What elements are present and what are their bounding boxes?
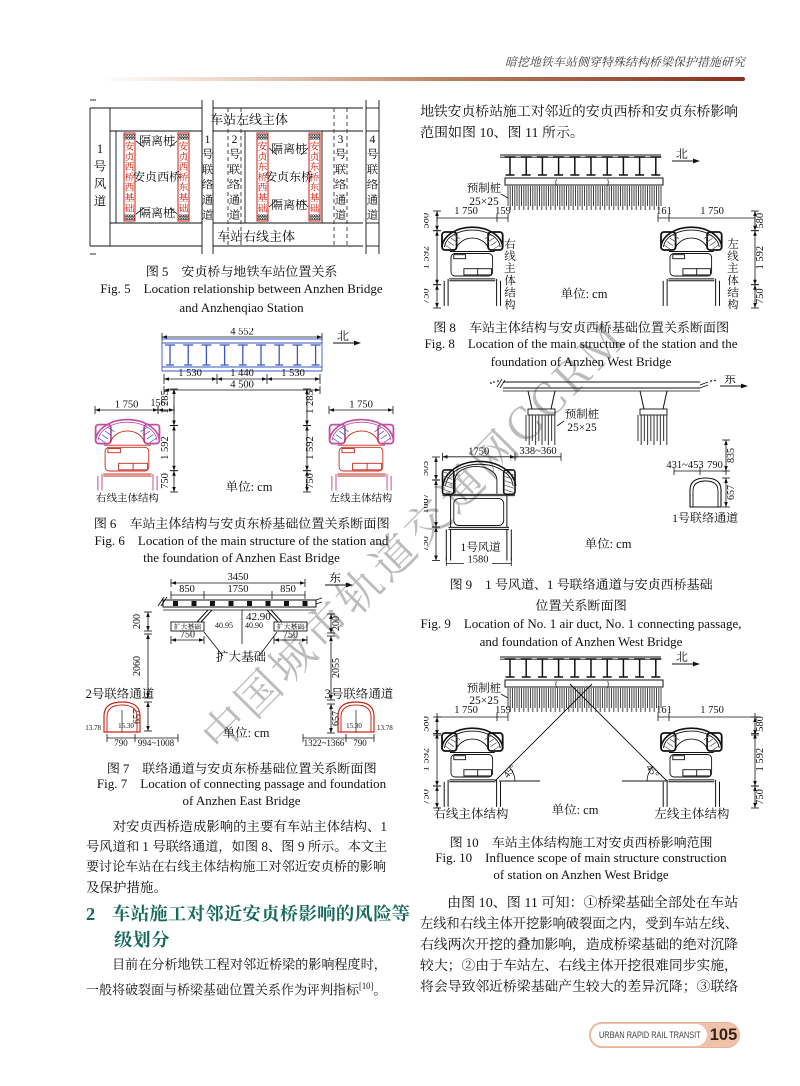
svg-text:1 592: 1 592 (755, 246, 766, 270)
svg-text:40.95: 40.95 (215, 621, 233, 630)
svg-text:号: 号 (202, 148, 214, 161)
svg-text:750: 750 (283, 630, 298, 641)
svg-text:左: 左 (727, 237, 739, 251)
svg-text:750: 750 (160, 473, 171, 489)
svg-text:750: 750 (305, 473, 316, 489)
svg-text:安贞东桥: 安贞东桥 (265, 170, 313, 184)
svg-text:750: 750 (424, 789, 432, 805)
svg-text:车站左线主体: 车站左线主体 (210, 112, 288, 127)
svg-text:2号联络通道: 2号联络通道 (86, 687, 155, 701)
svg-text:790: 790 (707, 460, 723, 471)
svg-text:东: 东 (724, 375, 736, 386)
svg-text:1 592: 1 592 (755, 748, 766, 772)
svg-text:3号联络通道: 3号联络通道 (325, 687, 394, 701)
svg-text:号: 号 (229, 148, 241, 161)
svg-text:1 750: 1 750 (454, 705, 478, 716)
svg-text:右: 右 (504, 238, 516, 251)
svg-text:通: 通 (367, 194, 379, 207)
svg-text:657: 657 (726, 485, 737, 500)
svg-text:200: 200 (132, 614, 143, 629)
svg-text:构: 构 (504, 299, 516, 312)
svg-text:4: 4 (370, 134, 376, 146)
svg-text:1 592: 1 592 (424, 748, 432, 772)
svg-text:右线主体结构: 右线主体结构 (96, 493, 159, 505)
svg-text:扩大基础: 扩大基础 (216, 650, 266, 664)
svg-text:贞: 贞 (125, 151, 135, 163)
svg-text:安: 安 (179, 141, 189, 153)
svg-text:161: 161 (656, 206, 672, 217)
svg-text:车站右线主体: 车站右线主体 (217, 229, 295, 244)
svg-text:基: 基 (310, 192, 320, 204)
svg-text:基: 基 (125, 192, 135, 204)
svg-text:42.90: 42.90 (246, 611, 271, 623)
svg-text:750: 750 (755, 789, 766, 805)
svg-text:体: 体 (727, 274, 739, 287)
svg-text:络: 络 (229, 179, 241, 192)
svg-text:结: 结 (727, 286, 739, 299)
svg-text:835: 835 (726, 448, 737, 463)
svg-text:道: 道 (202, 209, 214, 222)
svg-text:贞: 贞 (258, 151, 268, 163)
svg-text:础: 础 (179, 202, 189, 214)
svg-text:505: 505 (424, 461, 431, 476)
svg-text:右线主体结构: 右线主体结构 (433, 807, 509, 821)
svg-text:基: 基 (258, 192, 268, 204)
svg-text:25×25: 25×25 (567, 422, 597, 434)
svg-text:200: 200 (331, 616, 342, 631)
svg-text:580: 580 (755, 213, 766, 229)
svg-text:1322~1366: 1322~1366 (304, 738, 345, 748)
svg-text:结: 结 (504, 286, 516, 299)
svg-text:2: 2 (232, 134, 238, 146)
svg-text:基: 基 (179, 192, 189, 204)
svg-text:道: 道 (94, 195, 107, 209)
svg-text:750: 750 (755, 288, 766, 304)
svg-text:安: 安 (258, 141, 268, 153)
svg-text:1 530: 1 530 (281, 368, 305, 379)
svg-text:750: 750 (424, 288, 432, 304)
svg-text:1: 1 (205, 134, 211, 146)
svg-text:北: 北 (676, 148, 688, 161)
svg-text:15.30: 15.30 (346, 722, 362, 730)
svg-text:左线主体结构: 左线主体结构 (654, 807, 730, 821)
svg-text:15.30: 15.30 (118, 722, 134, 730)
svg-text:3: 3 (338, 134, 344, 146)
svg-text:156: 156 (151, 398, 166, 409)
svg-text:2055: 2055 (331, 658, 342, 678)
svg-text:4 552: 4 552 (230, 328, 254, 338)
svg-text:线: 线 (504, 250, 516, 263)
svg-text:安: 安 (310, 141, 320, 153)
svg-text:预制桩: 预制桩 (565, 408, 600, 421)
svg-text:1 750: 1 750 (700, 705, 724, 716)
svg-text:安: 安 (125, 141, 135, 153)
svg-text:1号风道: 1号风道 (460, 541, 501, 554)
svg-text:1580: 1580 (468, 555, 489, 566)
svg-text:联: 联 (202, 163, 214, 176)
svg-text:北: 北 (676, 650, 688, 664)
svg-text:础: 础 (258, 202, 268, 214)
svg-text:单位: cm: 单位: cm (226, 480, 273, 494)
svg-text:单位: cm: 单位: cm (223, 726, 270, 740)
svg-text:1 750: 1 750 (454, 206, 478, 217)
svg-text:580: 580 (424, 213, 432, 229)
svg-text:联: 联 (367, 163, 379, 176)
svg-text:号: 号 (367, 148, 379, 161)
svg-text:主: 主 (727, 262, 739, 275)
svg-text:2060: 2060 (132, 656, 143, 676)
svg-text:580: 580 (424, 716, 432, 732)
svg-text:左线主体结构: 左线主体结构 (329, 493, 393, 505)
svg-text:1 592: 1 592 (424, 246, 432, 270)
svg-text:号: 号 (94, 160, 107, 174)
svg-text:通: 通 (335, 194, 347, 207)
svg-text:580: 580 (755, 716, 766, 732)
svg-text:础: 础 (125, 202, 135, 214)
svg-text:45°: 45° (643, 763, 660, 781)
svg-text:790: 790 (353, 738, 367, 748)
svg-text:750: 750 (424, 536, 431, 551)
svg-text:1750: 1750 (468, 446, 489, 457)
svg-text:隔离桩: 隔离桩 (139, 206, 175, 220)
svg-text:1 750: 1 750 (700, 206, 724, 217)
svg-text:1 592: 1 592 (160, 436, 171, 460)
svg-text:994~1008: 994~1008 (138, 738, 175, 748)
svg-text:657: 657 (331, 711, 342, 726)
svg-text:{: { (554, 680, 558, 689)
svg-text:750: 750 (180, 630, 195, 641)
svg-text:络: 络 (202, 179, 214, 192)
svg-text:北: 北 (337, 329, 349, 343)
svg-text:道: 道 (367, 209, 379, 222)
svg-text:风: 风 (94, 177, 107, 191)
svg-text:161: 161 (656, 705, 672, 716)
svg-text:45°: 45° (501, 763, 518, 781)
svg-text:1 440: 1 440 (230, 368, 254, 379)
svg-text:1750: 1750 (228, 584, 249, 595)
svg-text:络: 络 (367, 179, 379, 192)
svg-text:}: } (606, 178, 610, 187)
svg-text:东: 东 (329, 571, 341, 585)
svg-text:338~360: 338~360 (519, 446, 556, 457)
svg-text:159: 159 (495, 705, 511, 716)
svg-text:通: 通 (229, 194, 241, 207)
svg-text:850: 850 (179, 584, 195, 595)
svg-text:3450: 3450 (228, 572, 249, 583)
svg-text:构: 构 (727, 299, 739, 312)
svg-text:1 750: 1 750 (349, 400, 373, 411)
svg-text:1 285: 1 285 (305, 390, 316, 414)
svg-text:联: 联 (335, 163, 347, 176)
svg-text:主: 主 (504, 262, 516, 275)
svg-text:隔离桩: 隔离桩 (139, 134, 175, 148)
svg-text:850: 850 (280, 584, 296, 595)
svg-text:790: 790 (114, 738, 128, 748)
svg-text:431~453: 431~453 (666, 460, 703, 471)
svg-text:单位: cm: 单位: cm (561, 287, 608, 301)
svg-text:体: 体 (504, 274, 516, 287)
svg-text:1 592: 1 592 (305, 436, 316, 460)
svg-text:4 500: 4 500 (230, 380, 254, 391)
svg-text:13.78: 13.78 (377, 724, 393, 732)
svg-text:单位: cm: 单位: cm (552, 803, 599, 817)
svg-text:1: 1 (97, 142, 103, 156)
svg-text:单位: cm: 单位: cm (585, 537, 632, 551)
svg-text:通: 通 (202, 194, 214, 207)
svg-text:础: 础 (310, 202, 320, 214)
svg-text:{: { (554, 178, 558, 187)
svg-text:道: 道 (229, 209, 241, 222)
svg-text:联: 联 (229, 163, 241, 176)
svg-text:1 750: 1 750 (115, 400, 139, 411)
svg-text:}: } (606, 680, 610, 689)
svg-text:1号联络通道: 1号联络通道 (672, 511, 738, 525)
svg-text:贞: 贞 (310, 151, 320, 163)
svg-text:道: 道 (335, 209, 347, 222)
svg-text:13.78: 13.78 (85, 724, 101, 732)
svg-text:159: 159 (495, 206, 511, 217)
svg-text:安贞西桥: 安贞西桥 (133, 170, 181, 184)
svg-text:号: 号 (335, 148, 347, 161)
svg-text:预制桩: 预制桩 (467, 182, 502, 195)
svg-text:线: 线 (727, 250, 739, 263)
svg-text:预制桩: 预制桩 (467, 682, 502, 695)
svg-text:络: 络 (335, 179, 347, 192)
svg-text:贞: 贞 (179, 151, 189, 163)
svg-text:1 530: 1 530 (178, 368, 202, 379)
svg-text:1667: 1667 (424, 494, 431, 514)
